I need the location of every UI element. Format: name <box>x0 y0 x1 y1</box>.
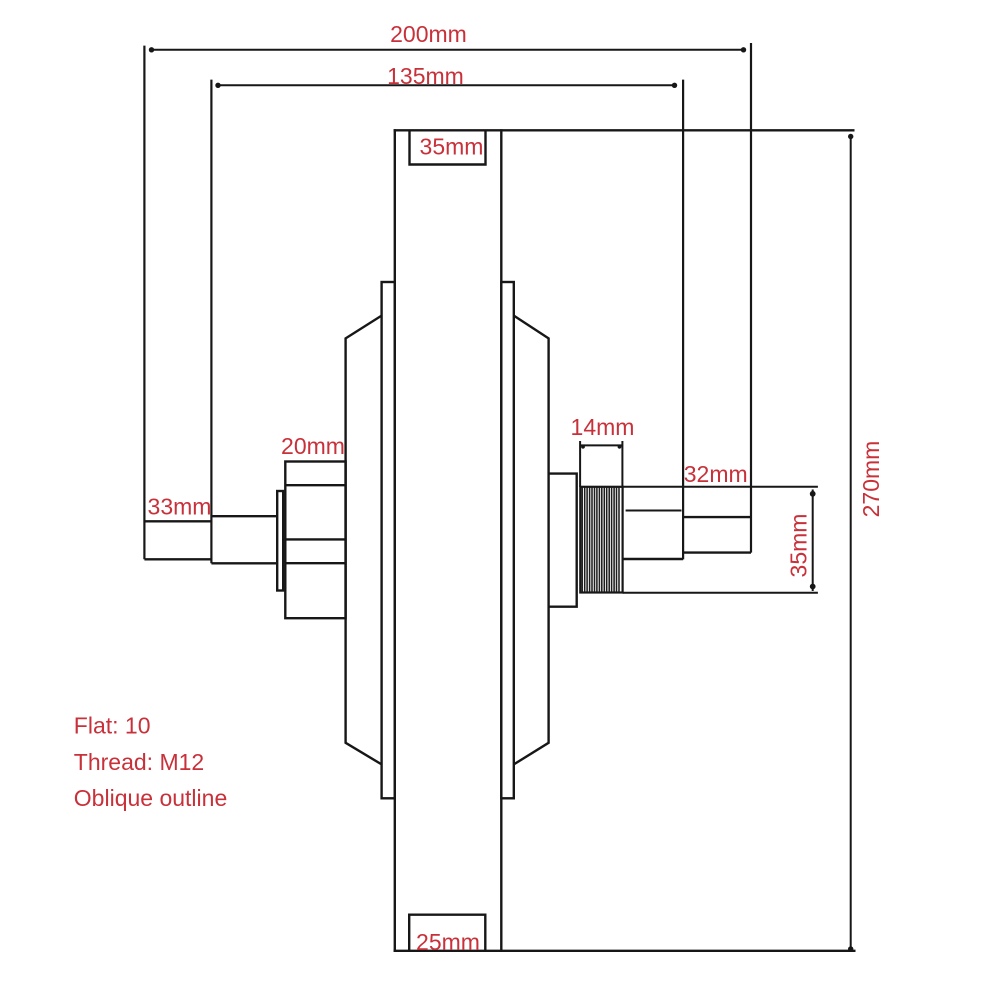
svg-text:200mm: 200mm <box>390 21 467 47</box>
svg-text:25mm: 25mm <box>416 929 480 955</box>
svg-text:32mm: 32mm <box>684 461 748 487</box>
svg-text:35mm: 35mm <box>420 134 484 160</box>
svg-text:Flat: 10: Flat: 10 <box>74 713 151 739</box>
svg-text:Oblique outline: Oblique outline <box>74 785 227 811</box>
svg-text:Thread: M12: Thread: M12 <box>74 749 204 775</box>
svg-text:33mm: 33mm <box>148 494 212 520</box>
svg-text:20mm: 20mm <box>281 433 345 459</box>
svg-text:35mm: 35mm <box>785 514 811 578</box>
svg-text:270mm: 270mm <box>858 441 884 518</box>
svg-text:135mm: 135mm <box>387 63 464 89</box>
svg-text:14mm: 14mm <box>571 414 635 440</box>
